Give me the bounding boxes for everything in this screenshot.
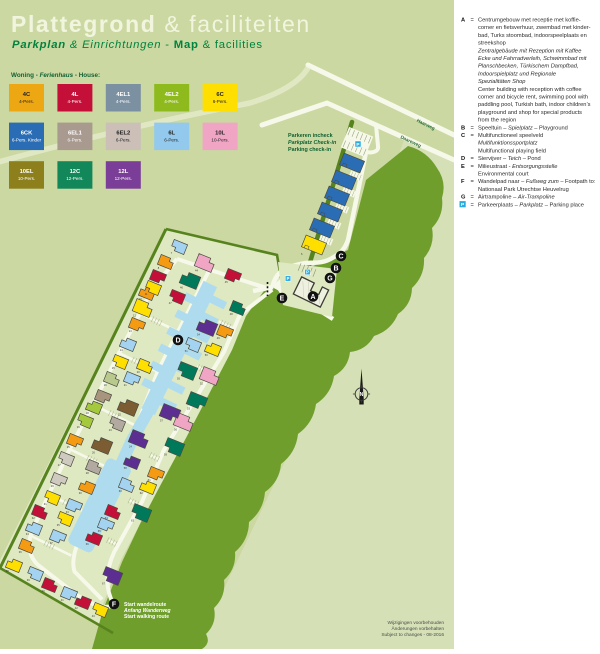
svg-text:G: G: [461, 195, 466, 201]
svg-text:6L: 6L: [168, 131, 175, 137]
svg-text:Start walking route: Start walking route: [124, 614, 169, 620]
svg-text:6EL1: 6EL1: [68, 131, 83, 137]
svg-text:Siervijver – Teich – Pond: Siervijver – Teich – Pond: [478, 156, 541, 162]
svg-text:6-Pers.: 6-Pers.: [213, 99, 228, 104]
svg-text:Environmental court: Environmental court: [478, 172, 529, 178]
svg-text:bad, Turks stoombad, indoorspe: bad, Turks stoombad, indoorspeelplaats e…: [478, 33, 587, 39]
svg-text:G: G: [327, 275, 333, 282]
svg-text:Subject to changes - 08-2016: Subject to changes - 08-2016: [381, 632, 444, 638]
svg-text:E: E: [280, 295, 285, 302]
svg-text:E: E: [461, 164, 465, 170]
svg-text:4-Pers.: 4-Pers.: [164, 99, 179, 104]
svg-text:corner en fietsverhuur, zwemba: corner en fietsverhuur, zwembad met kind…: [478, 25, 591, 31]
svg-text:12-Pers.: 12-Pers.: [115, 176, 132, 181]
svg-text:Milieustraat - Entsorgungsstel: Milieustraat - Entsorgungsstelle: [478, 164, 557, 170]
svg-text:Spezialitäten Shop: Spezialitäten Shop: [478, 79, 525, 85]
svg-text:Multifunktionssportplatz: Multifunktionssportplatz: [478, 141, 538, 147]
svg-text:A: A: [310, 294, 315, 301]
svg-text:Parkplan & Einrichtungen - Ma: Parkplan & Einrichtungen - Map & facilit…: [12, 39, 263, 51]
svg-text:Parkplatz Check-in: Parkplatz Check-in: [288, 140, 337, 146]
svg-text:Centrumgebouw met receptie met: Centrumgebouw met receptie met koffie-: [478, 18, 581, 24]
svg-text:B: B: [333, 265, 338, 272]
svg-text:4L: 4L: [72, 92, 79, 98]
svg-text:6-Pers. Kinder: 6-Pers. Kinder: [12, 138, 42, 143]
svg-text:Parkeerplaats – Parkplatz – Pa: Parkeerplaats – Parkplatz – Parking plac…: [478, 202, 584, 208]
svg-text:4-Pers.: 4-Pers.: [19, 99, 34, 104]
svg-text:from the region: from the region: [478, 118, 516, 124]
svg-text:10-Pers.: 10-Pers.: [18, 176, 35, 181]
svg-text:Airtrampoline – Air-Trampoline: Airtrampoline – Air-Trampoline: [478, 195, 555, 201]
svg-text:4-Pers.: 4-Pers.: [116, 99, 131, 104]
svg-text:Parking check-in: Parking check-in: [288, 147, 331, 153]
svg-text:4EL2: 4EL2: [165, 92, 179, 98]
svg-text:paddling pool, Turkish bath, i: paddling pool, Turkish bath, indoor chil…: [478, 102, 591, 108]
svg-text:6C: 6C: [216, 92, 224, 98]
svg-text:D: D: [461, 156, 465, 162]
svg-text:Ecke und Fahrradverleih, Schwi: Ecke und Fahrradverleih, Schwimmbad mit: [478, 56, 587, 62]
svg-text:12L: 12L: [118, 169, 128, 175]
svg-text:A: A: [461, 18, 465, 24]
svg-text:D: D: [175, 337, 180, 344]
svg-text:4EL1: 4EL1: [116, 92, 131, 98]
svg-text:Center building with reception: Center building with reception with coff…: [478, 87, 582, 93]
svg-text:12C: 12C: [70, 169, 81, 175]
svg-text:B: B: [461, 125, 465, 131]
svg-text:playground and shop for specia: playground and shop for special products: [478, 110, 582, 116]
svg-text:Wijzigingen voorbehouden: Wijzigingen voorbehouden: [387, 620, 444, 626]
svg-text:Änderungen vorbehalten: Änderungen vorbehalten: [391, 625, 444, 632]
svg-text:Wandelpad naar – Fußweg zum –: Wandelpad naar – Fußweg zum – Footpath t…: [478, 179, 596, 185]
svg-text:Plattegrond & faciliteiten: Plattegrond & faciliteiten: [11, 11, 311, 37]
svg-text:Parkeren incheck: Parkeren incheck: [288, 133, 333, 139]
svg-text:P: P: [356, 142, 359, 147]
svg-text:Woning - Ferienhaus - House:: Woning - Ferienhaus - House:: [11, 72, 100, 79]
svg-text:corner and bicycle rent, swimm: corner and bicycle rent, swimming pool w…: [478, 95, 588, 101]
svg-text:streekshop: streekshop: [478, 41, 506, 47]
svg-text:Multifunctioneel speelveld: Multifunctioneel speelveld: [478, 133, 543, 139]
svg-text:4C: 4C: [23, 92, 31, 98]
svg-text:10EL: 10EL: [20, 169, 34, 175]
svg-text:P: P: [287, 276, 290, 281]
svg-text:Indoorspielplatz und Regionale: Indoorspielplatz und Regionale: [478, 71, 556, 77]
svg-text:6-Pers.: 6-Pers.: [116, 138, 131, 143]
svg-text:C: C: [461, 133, 465, 139]
svg-text:Zentralgebäude mit Rezeption m: Zentralgebäude mit Rezeption mit Kaffee: [477, 48, 581, 54]
svg-text:6CK: 6CK: [21, 131, 33, 137]
svg-text:F: F: [112, 601, 117, 608]
svg-text:6-Pers.: 6-Pers.: [67, 138, 82, 143]
svg-text:F: F: [461, 179, 465, 185]
svg-text:10-Pers.: 10-Pers.: [211, 138, 228, 143]
svg-text:Speeltuin – Spielplatz – Playg: Speeltuin – Spielplatz – Playground: [478, 125, 568, 131]
svg-text:6-Pers.: 6-Pers.: [164, 138, 179, 143]
svg-text:P: P: [306, 270, 309, 275]
svg-text:Planschbecken, Türkischem Damp: Planschbecken, Türkischem Dampfbad,: [478, 64, 579, 70]
svg-text:10L: 10L: [215, 131, 225, 137]
svg-text:N: N: [360, 392, 364, 398]
svg-text:Nationaal Park Utrechtse Heuve: Nationaal Park Utrechtse Heuvelrug: [478, 187, 569, 193]
svg-text:C: C: [338, 253, 343, 260]
svg-text:4-Pers.: 4-Pers.: [67, 99, 82, 104]
svg-text:6EL2: 6EL2: [116, 131, 130, 137]
svg-text:12-Pers.: 12-Pers.: [66, 176, 83, 181]
svg-text:Multifunctional playing field: Multifunctional playing field: [478, 148, 546, 154]
